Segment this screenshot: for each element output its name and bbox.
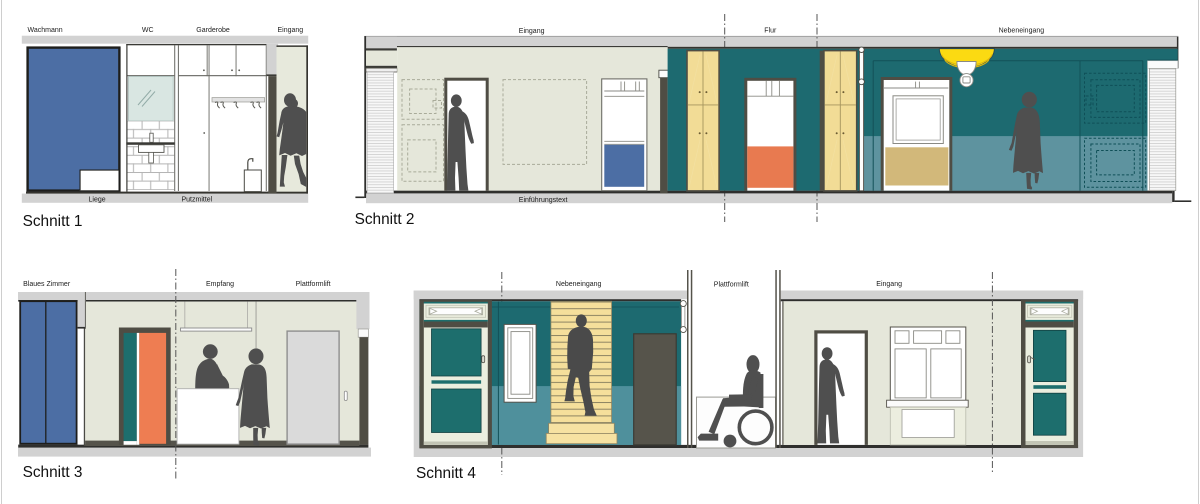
svg-text:Wachmann: Wachmann xyxy=(28,27,63,34)
svg-text:Eingang: Eingang xyxy=(519,28,545,35)
svg-text:Nebeneingang: Nebeneingang xyxy=(556,281,602,288)
svg-text:Schnitt 4: Schnitt 4 xyxy=(416,465,476,482)
svg-text:WC: WC xyxy=(142,27,154,34)
svg-text:Liege: Liege xyxy=(89,196,106,203)
svg-text:Schnitt 3: Schnitt 3 xyxy=(23,464,83,481)
svg-text:Eingang: Eingang xyxy=(278,27,304,34)
svg-text:Einführungstext: Einführungstext xyxy=(519,197,568,204)
svg-text:Nebeneingang: Nebeneingang xyxy=(999,28,1045,35)
svg-text:Schnitt 2: Schnitt 2 xyxy=(355,211,415,228)
svg-text:Flur: Flur xyxy=(764,28,777,35)
svg-text:Garderobe: Garderobe xyxy=(196,27,230,34)
svg-text:Empfang: Empfang xyxy=(206,281,234,288)
svg-text:Eingang: Eingang xyxy=(876,281,902,288)
svg-text:Plattformlift: Plattformlift xyxy=(714,282,749,289)
svg-text:Plattformlift: Plattformlift xyxy=(296,281,331,288)
svg-text:Putzmittel: Putzmittel xyxy=(182,196,213,203)
svg-text:Schnitt 1: Schnitt 1 xyxy=(23,213,83,230)
svg-text:Blaues Zimmer: Blaues Zimmer xyxy=(23,281,71,288)
